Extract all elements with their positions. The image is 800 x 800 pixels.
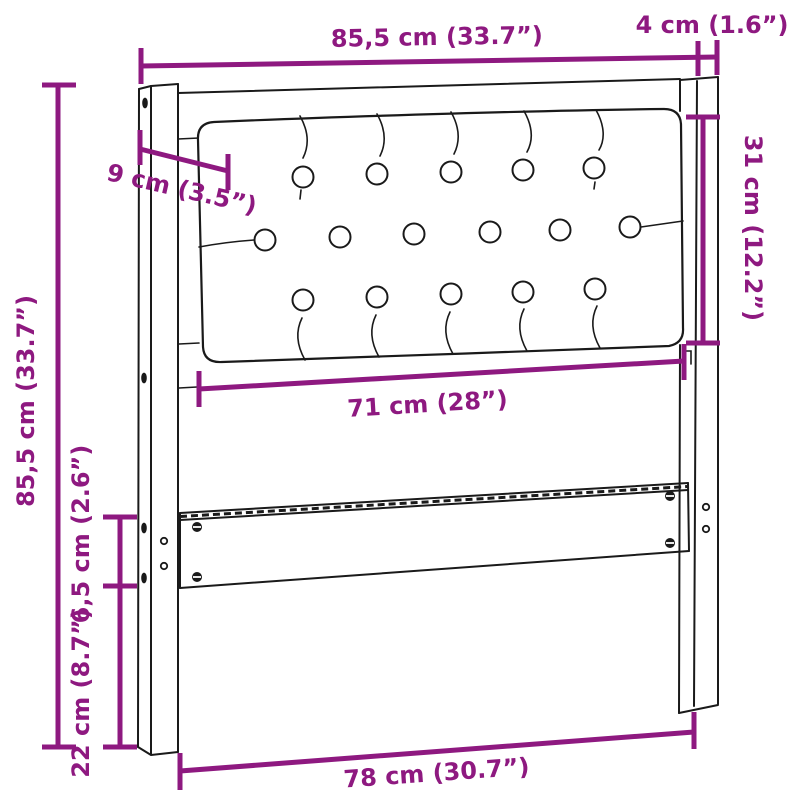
pleat-dash (300, 190, 301, 199)
tuft-button (293, 290, 314, 311)
pilot-hole (703, 526, 709, 532)
tuft-button (441, 162, 462, 183)
headboard-dimension-diagram: 85,5 cm (33.7”) 4 cm (1.6”) 85,5 cm (33.… (0, 0, 800, 800)
pleat-dash (594, 182, 595, 189)
tuft-button (255, 230, 276, 251)
board-screw (665, 491, 675, 501)
left-post-bottom-edge (138, 747, 178, 755)
tuft-button (620, 217, 641, 238)
tuft-button (550, 220, 571, 241)
extension-line-left (179, 387, 197, 388)
board-screw (665, 538, 675, 548)
bottom-rail-top-inner-edge (180, 490, 688, 520)
tuft-button (293, 167, 314, 188)
dim-frame-width: 85,5 cm (33.7”) (141, 21, 717, 84)
tuft-button (330, 227, 351, 248)
diagram-canvas: 85,5 cm (33.7”) 4 cm (1.6”) 85,5 cm (33.… (0, 0, 800, 800)
bottom-rail-top-face-hatch (180, 487, 688, 517)
right-post-lower-left-edge (679, 345, 680, 713)
tuft-button (480, 222, 501, 243)
cushion-panel (198, 109, 683, 362)
board-screw (192, 572, 202, 582)
left-post-top-edge (139, 84, 178, 89)
bottom-rail-right-end (688, 483, 689, 551)
top-rail-bottom-edge-stub (178, 138, 199, 139)
pilot-hole (703, 504, 709, 510)
board-screw (192, 522, 202, 532)
dim-rail-height: 6,5 cm (2.6”) (67, 445, 137, 624)
tuft-button (441, 284, 462, 305)
tuft-button (584, 158, 605, 179)
right-post-front-edge (694, 81, 697, 706)
tuft-button (513, 282, 534, 303)
dim-frame-width-label: 85,5 cm (33.7”) (331, 21, 544, 53)
dim-post-depth: 4 cm (1.6”) (636, 11, 789, 39)
bottom-rail-top-edge (180, 483, 688, 513)
dim-frame-height-label: 85,5 cm (33.7”) (12, 295, 40, 507)
tuft-button (367, 287, 388, 308)
tuft-button (404, 224, 425, 245)
bottom-rail (180, 483, 689, 588)
right-post-top-edge (680, 77, 718, 80)
dim-cushion-width-label: 71 cm (28”) (347, 385, 509, 423)
dim-leg-height-label: 22 cm (8.7”) (67, 608, 95, 778)
pilot-hole (161, 563, 167, 569)
dim-cushion-height-label: 31 cm (12.2”) (739, 135, 767, 321)
dim-leg-height: 22 cm (8.7”) (67, 586, 137, 778)
right-post (679, 77, 718, 713)
tuft-button (513, 160, 534, 181)
panel-bracket-left (179, 343, 199, 344)
bottom-rail-bottom-edge (180, 551, 689, 588)
side-screw (141, 523, 147, 534)
side-screw (141, 373, 147, 384)
top-rail-top-edge (178, 79, 680, 93)
side-screw (142, 98, 148, 109)
tuft-button (367, 164, 388, 185)
tuft-button (585, 279, 606, 300)
pilot-hole (161, 538, 167, 544)
dim-post-depth-label: 4 cm (1.6”) (636, 11, 789, 39)
dim-cushion-height: 31 cm (12.2”) (686, 117, 767, 343)
side-screw (141, 573, 147, 584)
right-post-bottom-edge (679, 705, 718, 713)
dim-rail-height-label: 6,5 cm (2.6”) (67, 445, 95, 624)
dim-inner-width: 78 cm (30.7”) (180, 712, 694, 793)
